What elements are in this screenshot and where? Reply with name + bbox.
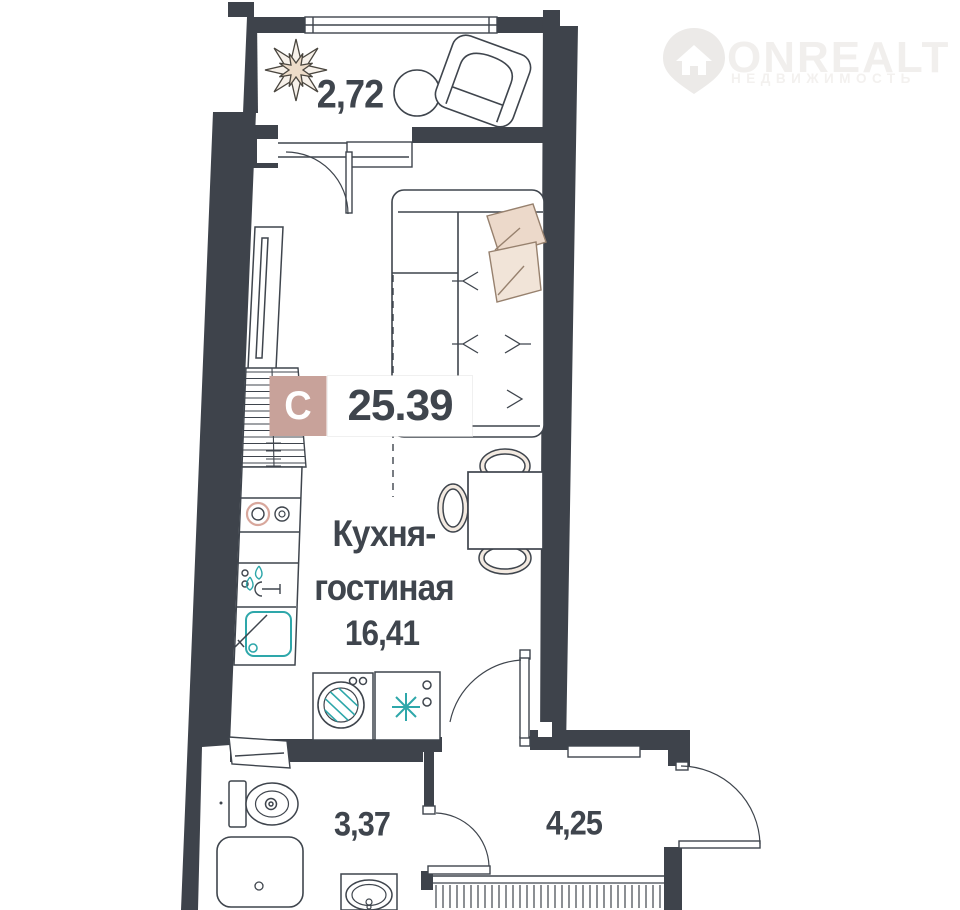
snowflake-icon	[392, 693, 420, 721]
washing-machine	[304, 673, 373, 740]
wardrobe	[248, 227, 283, 369]
toilet	[220, 781, 299, 827]
bathroom-door	[423, 806, 490, 874]
shower-tray	[217, 837, 303, 907]
bathroom-area-label: 3,37	[334, 806, 390, 845]
dishwasher	[375, 672, 440, 740]
armchair	[431, 31, 534, 130]
kitchen-living-label-line2: гостиная	[314, 567, 454, 609]
location-pin-logo-icon	[663, 28, 725, 94]
floorplan-image: 2,72 С 25.39 Кухня- гостиная 16,41 3,37 …	[0, 0, 960, 910]
hallway-area-label: 4,25	[546, 805, 602, 844]
hall-wardrobe-hatch	[430, 876, 664, 908]
bathroom-sink	[341, 874, 397, 910]
living-hall-door	[450, 650, 530, 746]
watermark-tagline: НЕДВИЖИМОСТЬ	[731, 71, 916, 86]
balcony-window	[305, 17, 497, 33]
kitchen-living-area-label: 16,41	[345, 614, 419, 654]
total-area-badge: С 25.39	[268, 376, 472, 436]
bathroom-shelf	[229, 737, 290, 768]
dining-table	[468, 472, 543, 549]
sofa-pillows	[487, 204, 546, 302]
entrance-door	[676, 762, 760, 848]
kitchen-living-label-line1: Кухня-	[332, 513, 435, 555]
round-table	[394, 70, 440, 116]
apartment-type-letter: С	[270, 376, 327, 436]
total-area-value: 25.39	[328, 376, 472, 436]
floorplan-drawing	[0, 0, 960, 910]
balcony-area-label: 2,72	[317, 73, 383, 118]
